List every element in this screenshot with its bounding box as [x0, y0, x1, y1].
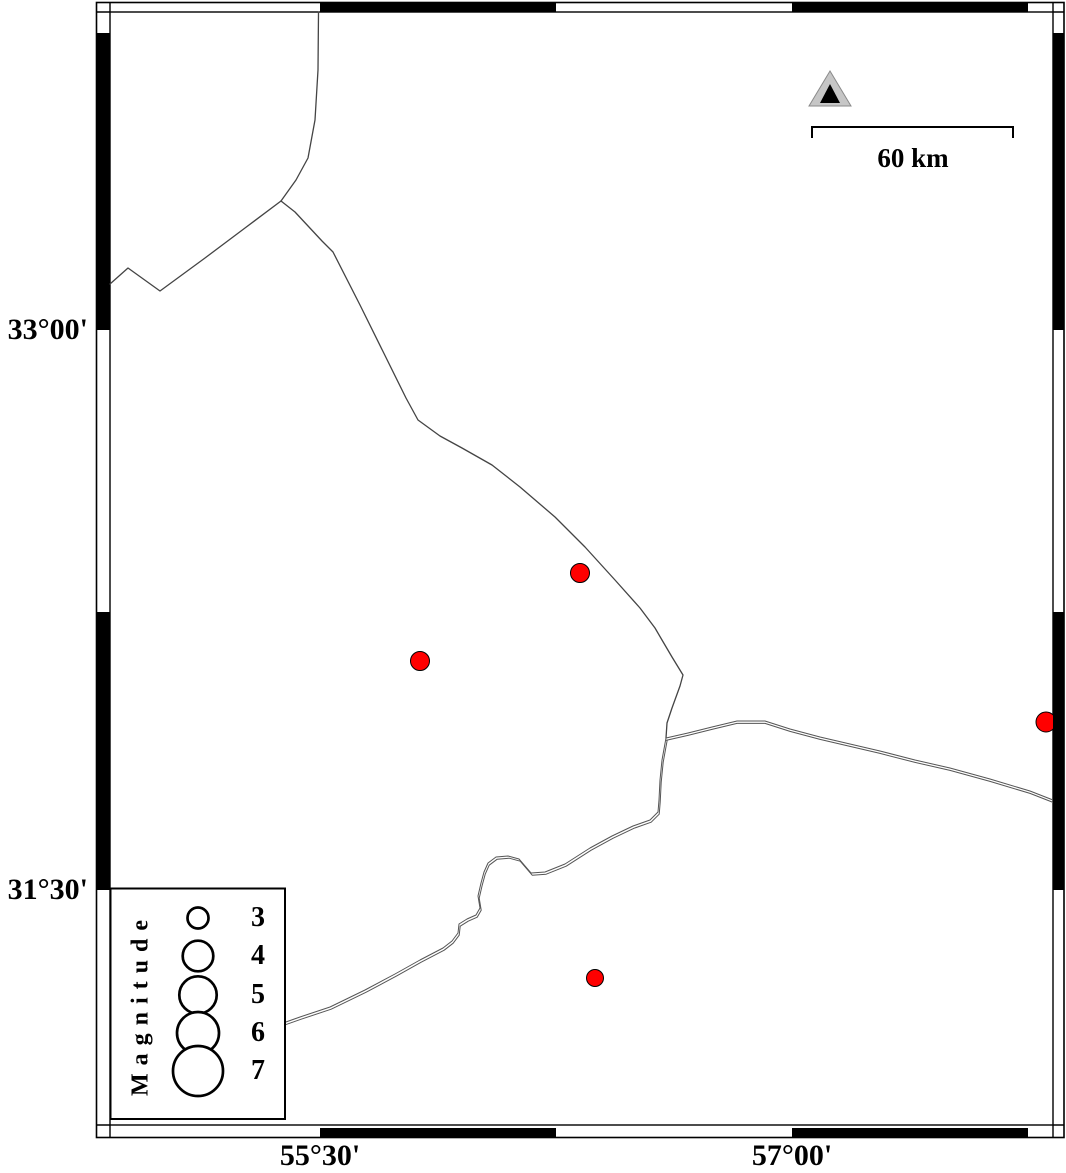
map-canvas: [0, 0, 1066, 1173]
legend-magnitude-circle: [188, 908, 209, 929]
station-triangle-icon: [809, 71, 851, 106]
road-line-southwest: [283, 738, 667, 1025]
legend-magnitude-circle: [183, 941, 214, 972]
lon-label-east: 57°00': [712, 1139, 872, 1173]
legend-magnitude-6: 6: [251, 1017, 265, 1049]
legend-magnitude-circle: [173, 1046, 223, 1096]
road-lines: [283, 721, 1053, 1025]
boundary-lines: [110, 12, 683, 738]
scale-bar-label: 60 km: [813, 143, 1013, 173]
legend-magnitude-circle: [179, 976, 216, 1013]
boundary-line-west: [110, 201, 281, 291]
earthquake-epicenter: [587, 970, 604, 987]
legend-magnitude-4: 4: [251, 940, 265, 972]
earthquake-layer: [411, 564, 1057, 987]
boundary-line-north: [281, 12, 319, 201]
legend-magnitude-5: 5: [251, 979, 265, 1011]
scale-bar: [812, 127, 1013, 138]
legend-magnitude-7: 7: [251, 1055, 265, 1087]
legend-magnitude-3: 3: [251, 902, 265, 934]
legend-title: Magnitude: [128, 912, 155, 1096]
right-band-overlay: [1053, 612, 1064, 890]
lon-label-west: 55°30': [240, 1139, 400, 1173]
boundary-line-main: [281, 201, 683, 738]
seismicity-map: 33°00' 31°30' 55°30' 57°00' 60 km Magnit…: [0, 0, 1066, 1173]
lat-label-north: 33°00': [0, 312, 88, 348]
earthquake-epicenter: [571, 564, 590, 583]
lat-label-south: 31°30': [0, 872, 88, 908]
road-line-east: [666, 721, 1053, 802]
earthquake-epicenter: [411, 652, 430, 671]
